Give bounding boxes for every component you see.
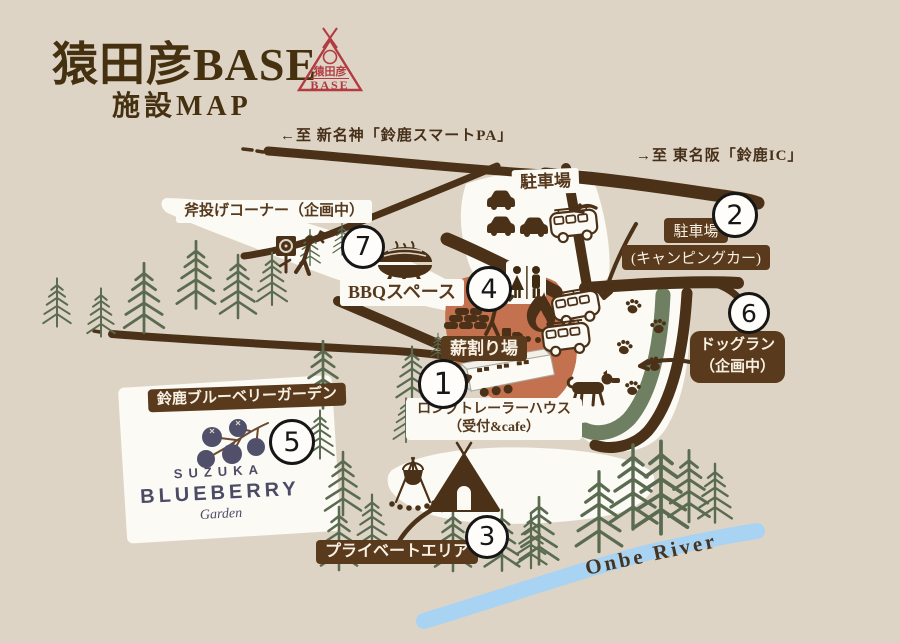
road-main-left — [268, 151, 545, 174]
label-dog-run: ドッグラン （企画中） — [690, 331, 785, 383]
logo-base-text: BASE — [310, 78, 349, 92]
marker-4: 4 — [466, 266, 512, 312]
label-trailer-line2: （受付&cafe） — [412, 419, 576, 437]
label-dog-run-line1: ドッグラン — [700, 335, 775, 357]
logo-name-text: 猿田彦 — [313, 64, 347, 78]
marker-5: 5 — [269, 419, 315, 465]
label-axe-throwing: 斧投げコーナー（企画中） — [176, 200, 372, 223]
marker-7: 7 — [341, 225, 385, 269]
label-private-area: プライベートエリア — [316, 540, 478, 564]
marker-2: 2 — [712, 192, 758, 238]
facility-map: 猿田彦BASE 施設MAP 猿田彦 BASE ←至 新名神「鈴鹿スマートPA」 … — [0, 0, 900, 643]
label-camper-parking-line2: (キャンピングカー) — [622, 245, 770, 270]
page-subtitle: 施設MAP — [112, 84, 252, 124]
axe-target-icon — [276, 236, 296, 272]
blueberry-logo: SUZUKA BLUEBERRY Garden — [124, 459, 317, 528]
label-firewood: 薪割り場 — [441, 336, 527, 361]
label-bbq: BBQスペース — [340, 279, 464, 306]
label-parking: 駐車場 — [512, 168, 580, 196]
direction-shinmeishin: ←至 新名神「鈴鹿スマートPA」 — [280, 124, 513, 145]
direction-higashimeihan: →至 東名阪「鈴鹿IC」 — [636, 144, 803, 165]
marker-1: 1 — [418, 359, 468, 409]
label-dog-run-line2: （企画中） — [700, 357, 775, 379]
label-camper-parking: 駐車場 (キャンピングカー) — [610, 218, 782, 270]
marker-3: 3 — [465, 515, 509, 559]
sarutahiko-base-logo: 猿田彦 BASE — [294, 26, 366, 102]
marker-6: 6 — [728, 292, 770, 334]
